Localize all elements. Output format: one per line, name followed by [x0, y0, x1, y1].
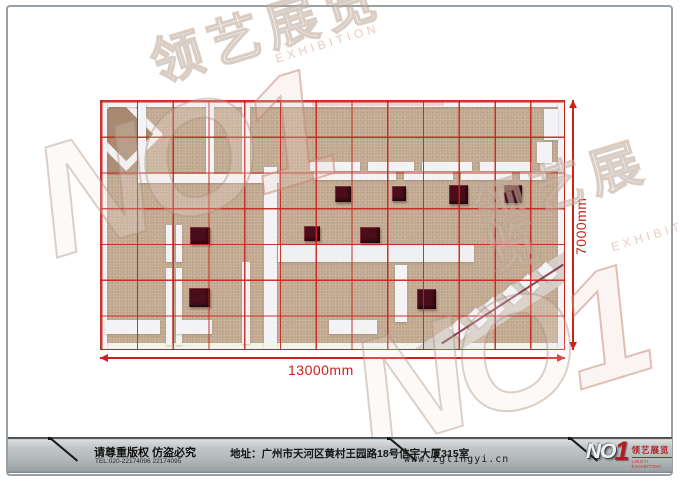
display-box	[504, 185, 522, 203]
top-wall-pink-band	[312, 100, 444, 106]
plan-wall	[206, 100, 214, 181]
display-box	[360, 227, 380, 243]
footer-bar: 请尊重版权 仿盗必究 TEL:020-22174096 22174095 地址：…	[8, 437, 672, 473]
logo-cn-text: 领艺展览	[632, 444, 672, 456]
plan-wall	[242, 100, 250, 181]
right-alcove-upper	[544, 109, 558, 140]
display-box	[417, 289, 436, 309]
logo-rule	[632, 457, 672, 458]
plan-wall	[422, 162, 472, 171]
plan-wall	[368, 162, 414, 171]
plan-wall	[395, 265, 407, 322]
logo-one-glyph: 1	[615, 436, 630, 467]
company-logo: NO1 领艺展览 LINGYI EXHIBITION	[586, 440, 672, 469]
plan-wall	[176, 225, 182, 262]
footer-leader-line	[49, 437, 78, 461]
plan-wall	[540, 162, 558, 171]
outer-wall-right	[558, 100, 565, 350]
logo-no-text: NO	[586, 440, 616, 464]
display-box	[189, 288, 210, 307]
display-box	[392, 186, 406, 201]
display-box	[449, 185, 468, 204]
plan-wall	[176, 320, 212, 334]
center-corridor	[264, 167, 277, 350]
right-alcove-lower	[537, 142, 552, 163]
outer-wall-left	[100, 100, 107, 350]
plan-wall	[105, 320, 160, 334]
plan-wall	[166, 268, 172, 345]
plan-wall	[138, 100, 146, 181]
plan-wall	[520, 172, 546, 180]
plan-wall	[461, 172, 512, 180]
plan-wall	[242, 262, 250, 344]
plan-wall	[310, 162, 360, 171]
plan-wall	[166, 225, 172, 262]
plan-wall	[329, 320, 377, 334]
telephone-text: TEL:020-22174096 22174095	[95, 458, 181, 465]
walkway	[278, 245, 474, 262]
plan-wall	[137, 174, 279, 183]
diagonal-rail	[441, 264, 564, 345]
floor-plan	[100, 100, 565, 350]
plan-wall	[404, 172, 453, 180]
logo-en-text: LINGYI EXHIBITION	[632, 459, 672, 469]
display-box	[335, 186, 351, 202]
plan-wall	[314, 172, 396, 180]
drawing-page: 领艺展览 EXHIBITION NO1 领艺展览 EXHIBITION NO1 …	[0, 0, 680, 481]
plan-wall	[480, 162, 532, 171]
website-text: www.zglingyi.cn	[404, 454, 509, 465]
display-box	[190, 227, 210, 244]
display-box	[304, 226, 320, 241]
